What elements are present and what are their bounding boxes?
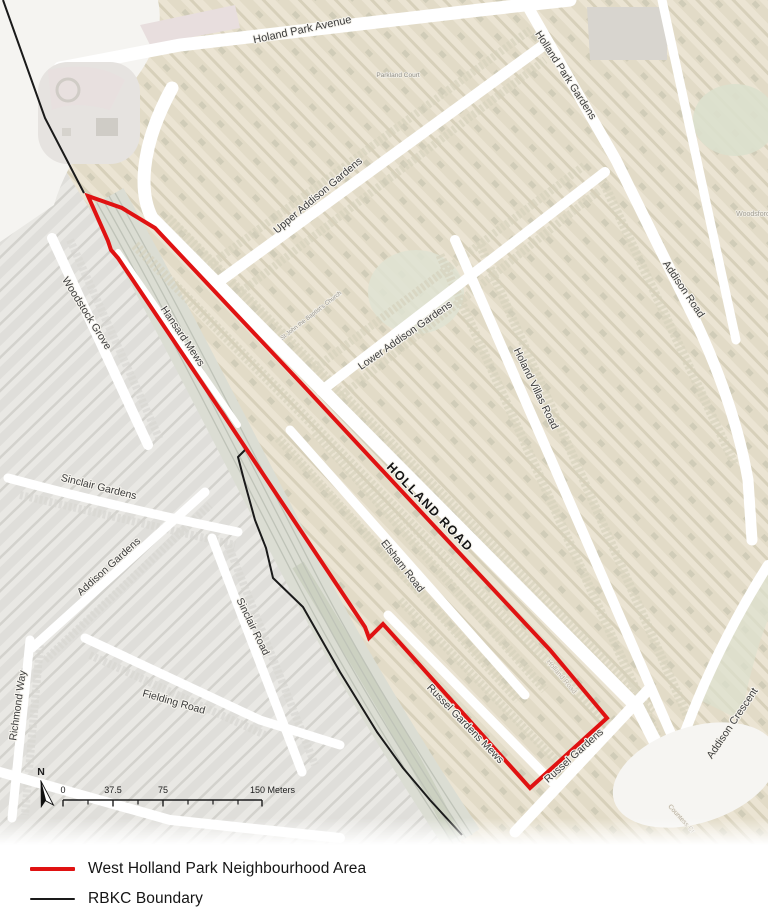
label-woodsford: Woodsford	[736, 211, 768, 218]
legend-line-black	[30, 898, 75, 900]
map-figure: Parkland CourtSt John the Baptist's Chur…	[0, 0, 768, 923]
map-canvas: Parkland CourtSt John the Baptist's Chur…	[0, 0, 768, 845]
scale-label: 75	[158, 785, 168, 795]
north-arrow-label: N	[37, 766, 45, 778]
roundabout-island	[38, 62, 140, 164]
scale-label: 150 Meters	[250, 785, 296, 795]
label-parkland-court: Parkland Court	[376, 72, 420, 79]
block-grey-building	[587, 7, 667, 60]
legend-item-neighbourhood-area: West Holland Park Neighbourhood Area	[0, 859, 366, 879]
legend-line-red	[30, 867, 75, 871]
legend-item-rbkc-boundary: RBKC Boundary	[0, 889, 203, 909]
legend-label-rbkc-boundary: RBKC Boundary	[88, 890, 203, 908]
scale-label: 0	[60, 785, 65, 795]
map-bottom-fade	[0, 818, 768, 845]
scale-label: 37.5	[104, 785, 122, 795]
legend: West Holland Park Neighbourhood Area RBK…	[0, 845, 768, 923]
legend-label-neighbourhood-area: West Holland Park Neighbourhood Area	[88, 860, 366, 878]
